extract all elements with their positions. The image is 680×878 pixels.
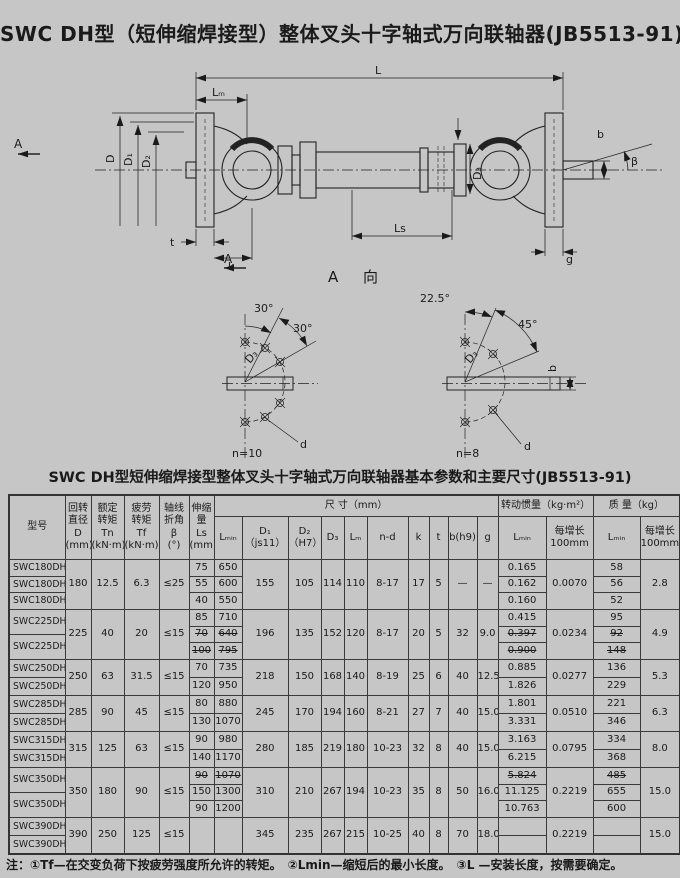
cell-value: 550 bbox=[215, 593, 242, 609]
model-cell: SWC350DH1SWC350DH2 bbox=[9, 768, 65, 818]
inertia-lmin-cell: 5.82411.12510.763 bbox=[498, 768, 546, 818]
right-b-label: b bbox=[546, 365, 559, 372]
ls-cell bbox=[189, 818, 214, 855]
mass-per100-cell: 15.0 bbox=[640, 818, 680, 855]
b-cell: 40 bbox=[448, 696, 477, 732]
cell-value: 55 bbox=[190, 577, 214, 594]
model-cell: SWC390DH1SWC390DH2 bbox=[9, 818, 65, 855]
b-cell: 70 bbox=[448, 818, 477, 855]
tn-cell: 63 bbox=[91, 660, 124, 696]
table-row: SWC250DH1SWC250DH22506331.5≤157012073595… bbox=[9, 660, 680, 696]
t-cell: 7 bbox=[429, 696, 448, 732]
header-nd: n-d bbox=[367, 517, 408, 560]
cell-value: 0.415 bbox=[499, 610, 546, 627]
d-cell: 250 bbox=[65, 660, 91, 696]
cell-value: 75 bbox=[190, 560, 214, 577]
main-view-labels: L Lₘ Ls D D₁ D₂ D₃ t k g b β A A bbox=[14, 64, 638, 273]
lm-cell: 120 bbox=[344, 610, 367, 660]
cell-value: 1300 bbox=[215, 785, 242, 802]
header-lmin: Lₘᵢₙ bbox=[214, 517, 242, 560]
d3-cell: 114 bbox=[321, 560, 344, 610]
ls-cell: 9015090 bbox=[189, 768, 214, 818]
section-A-label-bottom: A bbox=[224, 252, 233, 266]
tn-cell: 180 bbox=[91, 768, 124, 818]
inertia-per100-cell: 0.2219 bbox=[546, 818, 593, 855]
cell-value: 90 bbox=[190, 732, 214, 750]
t-cell: 5 bbox=[429, 610, 448, 660]
mass-per100-cell: 2.8 bbox=[640, 560, 680, 610]
d1-cell: 155 bbox=[242, 560, 288, 610]
cell-value: 70 bbox=[190, 660, 214, 678]
d2-cell: 170 bbox=[288, 696, 321, 732]
beta-deflection-line bbox=[563, 144, 652, 170]
angle-225-label: 22.5° bbox=[420, 292, 450, 305]
mass-lmin-cell: 9592148 bbox=[593, 610, 640, 660]
cell-value: 640 bbox=[215, 627, 242, 644]
d2-cell: 105 bbox=[288, 560, 321, 610]
inertia-per100-cell: 0.0277 bbox=[546, 660, 593, 696]
ls-cell: 90140 bbox=[189, 732, 214, 768]
angle-30-label-2: 30° bbox=[293, 322, 313, 335]
coupling-drawing-svg: L Lₘ Ls D D₁ D₂ D₃ t k g b β A A A 向 30°… bbox=[0, 58, 680, 460]
d2-cell: 185 bbox=[288, 732, 321, 768]
mass-lmin-cell: 334368 bbox=[593, 732, 640, 768]
ls-cell: 8570100 bbox=[189, 610, 214, 660]
b-cell: — bbox=[448, 560, 477, 610]
d2-cell: 235 bbox=[288, 818, 321, 855]
mass-lmin-cell: 221346 bbox=[593, 696, 640, 732]
k-cell: 25 bbox=[408, 660, 429, 696]
nd-cell: 10-25 bbox=[367, 818, 408, 855]
cell-value: 1070 bbox=[215, 714, 242, 731]
inertia-lmin-cell: 3.1636.215 bbox=[498, 732, 546, 768]
cell-value: 5.824 bbox=[499, 768, 546, 785]
cell-value: 11.125 bbox=[499, 785, 546, 802]
model-name: SWC390DH2 bbox=[10, 836, 65, 853]
header-d1: D₁ （js11） bbox=[242, 517, 288, 560]
k-cell: 32 bbox=[408, 732, 429, 768]
tn-cell: 12.5 bbox=[91, 560, 124, 610]
d3-cell: 219 bbox=[321, 732, 344, 768]
header-inertia-per100: 每增长 100mm bbox=[546, 517, 593, 560]
k-cell: 27 bbox=[408, 696, 429, 732]
left-bearing-cap bbox=[232, 140, 272, 149]
dim-D2-label: D₂ bbox=[140, 155, 153, 168]
section-A-label-left: A bbox=[14, 137, 23, 151]
lmin-cell: 710640795 bbox=[214, 610, 242, 660]
header-extension: 伸缩 量 Ls (mm) bbox=[189, 495, 214, 560]
dim-b-label: b bbox=[597, 128, 604, 141]
left-D3-label: D₃ bbox=[242, 348, 260, 366]
tf-cell: 31.5 bbox=[124, 660, 159, 696]
model-name: SWC180DH1 bbox=[10, 560, 65, 577]
cell-value: 1.826 bbox=[499, 678, 546, 695]
dim-g-label: g bbox=[566, 253, 573, 266]
cell-value: 0.160 bbox=[499, 593, 546, 609]
g-cell: — bbox=[477, 560, 498, 610]
tf-cell: 63 bbox=[124, 732, 159, 768]
d3-cell: 168 bbox=[321, 660, 344, 696]
model-cell: SWC285DH1SWC285DH2 bbox=[9, 696, 65, 732]
nd-cell: 8-21 bbox=[367, 696, 408, 732]
inertia-lmin-cell: 0.1650.1620.160 bbox=[498, 560, 546, 610]
cell-value: 346 bbox=[594, 714, 640, 731]
dim-L-label: L bbox=[375, 64, 382, 77]
tn-cell: 40 bbox=[91, 610, 124, 660]
lm-cell: 194 bbox=[344, 768, 367, 818]
cell-value bbox=[499, 836, 546, 853]
right-bearing-cap bbox=[480, 140, 520, 149]
g-cell: 16.0 bbox=[477, 768, 498, 818]
right-detail-view bbox=[442, 308, 586, 458]
d-cell: 315 bbox=[65, 732, 91, 768]
cell-value: 150 bbox=[190, 785, 214, 802]
model-name: SWC350DH1 bbox=[10, 768, 65, 793]
model-name: SWC250DH2 bbox=[10, 678, 65, 695]
tn-cell: 125 bbox=[91, 732, 124, 768]
table-row: SWC285DH1SWC285DH22859045≤15801308801070… bbox=[9, 696, 680, 732]
header-rotation-diameter: 回转 直径 D (mm) bbox=[65, 495, 91, 560]
cell-value bbox=[594, 818, 640, 836]
inertia-lmin-cell: 0.4150.3970.900 bbox=[498, 610, 546, 660]
t-cell: 8 bbox=[429, 818, 448, 855]
footnote: 注：①Tf—在交变负荷下按疲劳强度所允许的转矩。 ②Lmin—缩短后的最小长度。… bbox=[6, 856, 678, 873]
g-cell: 15.0 bbox=[477, 732, 498, 768]
cell-value: 0.900 bbox=[499, 643, 546, 659]
d1-cell: 280 bbox=[242, 732, 288, 768]
d2-cell: 135 bbox=[288, 610, 321, 660]
k-cell: 35 bbox=[408, 768, 429, 818]
cell-value: 52 bbox=[594, 593, 640, 609]
cell-value: 40 bbox=[190, 593, 214, 609]
header-model: 型号 bbox=[9, 495, 65, 560]
header-t: t bbox=[429, 517, 448, 560]
header-k: k bbox=[408, 517, 429, 560]
tn-cell: 90 bbox=[91, 696, 124, 732]
tf-cell: 6.3 bbox=[124, 560, 159, 610]
model-cell: SWC180DH1SWC180DH2SWC180DH3 bbox=[9, 560, 65, 610]
beta-cell: ≤25 bbox=[159, 560, 189, 610]
lm-cell: 215 bbox=[344, 818, 367, 855]
d2-cell: 150 bbox=[288, 660, 321, 696]
model-name: SWC250DH1 bbox=[10, 660, 65, 678]
angle-45-label: 45° bbox=[518, 318, 538, 331]
left-n-label: n=10 bbox=[232, 447, 262, 460]
cell-value: 229 bbox=[594, 678, 640, 695]
cell-value: 90 bbox=[190, 801, 214, 817]
model-name: SWC225DH1 bbox=[10, 610, 65, 635]
left-detail-labels: 30° 30° D₃ d n=10 bbox=[232, 302, 313, 460]
right-detail-labels: 22.5° 45° D₃ d n=8 b bbox=[420, 292, 559, 460]
d3-cell: 194 bbox=[321, 696, 344, 732]
cell-value: 0.397 bbox=[499, 627, 546, 644]
mass-per100-cell: 4.9 bbox=[640, 610, 680, 660]
cell-value: 140 bbox=[190, 750, 214, 767]
right-d-label: d bbox=[524, 440, 531, 453]
d-cell: 390 bbox=[65, 818, 91, 855]
page-title: SWC DH型（短伸缩焊接型）整体叉头十字轴式万向联轴器(JB5513-91) bbox=[0, 18, 680, 47]
k-cell: 20 bbox=[408, 610, 429, 660]
cell-value bbox=[594, 836, 640, 853]
cell-value: 0.885 bbox=[499, 660, 546, 678]
header-g: g bbox=[477, 517, 498, 560]
inertia-per100-cell: 0.0234 bbox=[546, 610, 593, 660]
lm-cell: 140 bbox=[344, 660, 367, 696]
mass-per100-cell: 5.3 bbox=[640, 660, 680, 696]
cell-value: 710 bbox=[215, 610, 242, 627]
b-cell: 50 bbox=[448, 768, 477, 818]
table-row: SWC315DH1SWC315DH231512563≤1590140980117… bbox=[9, 732, 680, 768]
cell-value: 368 bbox=[594, 750, 640, 767]
model-name: SWC180DH2 bbox=[10, 577, 65, 594]
dim-Lm-label: Lₘ bbox=[212, 86, 225, 99]
beta-cell: ≤15 bbox=[159, 660, 189, 696]
lmin-cell: 8801070 bbox=[214, 696, 242, 732]
cell-value: 3.331 bbox=[499, 714, 546, 731]
cell-value: 120 bbox=[190, 678, 214, 695]
cell-value bbox=[215, 818, 242, 853]
cell-value: 600 bbox=[594, 801, 640, 817]
mass-per100-cell: 15.0 bbox=[640, 768, 680, 818]
dim-Ls-label: Ls bbox=[394, 222, 406, 235]
cell-value: 58 bbox=[594, 560, 640, 577]
model-name: SWC285DH2 bbox=[10, 714, 65, 731]
mass-per100-cell: 6.3 bbox=[640, 696, 680, 732]
table-row: SWC350DH1SWC350DH235018090≤1590150901070… bbox=[9, 768, 680, 818]
cell-value: 655 bbox=[594, 785, 640, 802]
cell-value: 950 bbox=[215, 678, 242, 695]
ls-cell: 80130 bbox=[189, 696, 214, 732]
dim-D1-label: D₁ bbox=[122, 153, 135, 166]
d-cell: 285 bbox=[65, 696, 91, 732]
g-cell: 9.0 bbox=[477, 610, 498, 660]
cell-value: 148 bbox=[594, 643, 640, 659]
mass-lmin-cell bbox=[593, 818, 640, 855]
nd-cell: 10-23 bbox=[367, 732, 408, 768]
tf-cell: 20 bbox=[124, 610, 159, 660]
d1-cell: 196 bbox=[242, 610, 288, 660]
inertia-per100-cell: 0.0070 bbox=[546, 560, 593, 610]
cell-value: 80 bbox=[190, 696, 214, 714]
header-size-band: 尺 寸（mm） bbox=[214, 495, 498, 517]
cell-value: 1.801 bbox=[499, 696, 546, 714]
cell-value: 136 bbox=[594, 660, 640, 678]
technical-drawing: L Lₘ Ls D D₁ D₂ D₃ t k g b β A A A 向 30°… bbox=[0, 58, 680, 460]
cell-value: 0.162 bbox=[499, 577, 546, 594]
t-cell: 6 bbox=[429, 660, 448, 696]
lm-cell: 180 bbox=[344, 732, 367, 768]
dim-beta-label: β bbox=[631, 155, 638, 168]
cell-value: 1200 bbox=[215, 801, 242, 817]
d1-cell: 245 bbox=[242, 696, 288, 732]
lmin-cell: 650600550 bbox=[214, 560, 242, 610]
table-row: SWC390DH1SWC390DH2390250125≤153452352672… bbox=[9, 818, 680, 855]
lm-cell: 160 bbox=[344, 696, 367, 732]
d3-cell: 267 bbox=[321, 818, 344, 855]
cell-value: 1170 bbox=[215, 750, 242, 767]
model-name: SWC180DH3 bbox=[10, 593, 65, 609]
t-cell: 5 bbox=[429, 560, 448, 610]
d-cell: 225 bbox=[65, 610, 91, 660]
header-inertia-lmin: Lₘᵢₙ bbox=[498, 517, 546, 560]
right-n-label: n=8 bbox=[456, 447, 479, 460]
cell-value: 90 bbox=[190, 768, 214, 785]
ls-cell: 755540 bbox=[189, 560, 214, 610]
header-mass-band: 质 量（kg） bbox=[593, 495, 680, 517]
tf-cell: 125 bbox=[124, 818, 159, 855]
cell-value: 980 bbox=[215, 732, 242, 750]
d1-cell: 345 bbox=[242, 818, 288, 855]
cell-value: 3.163 bbox=[499, 732, 546, 750]
mass-lmin-cell: 485655600 bbox=[593, 768, 640, 818]
cell-value: 1070 bbox=[215, 768, 242, 785]
d2-cell: 210 bbox=[288, 768, 321, 818]
cell-value: 130 bbox=[190, 714, 214, 731]
dim-D3-label: D₃ bbox=[471, 167, 484, 180]
nd-cell: 10-23 bbox=[367, 768, 408, 818]
spec-table: 型号 回转 直径 D (mm) 额定 转矩 Tn (kN·m) 疲劳 转矩 Tf… bbox=[8, 494, 680, 855]
nd-cell: 8-19 bbox=[367, 660, 408, 696]
t-cell: 8 bbox=[429, 768, 448, 818]
cell-value: 70 bbox=[190, 627, 214, 644]
mass-lmin-cell: 585652 bbox=[593, 560, 640, 610]
header-fatigue-torque: 疲劳 转矩 Tf (kN·m) bbox=[124, 495, 159, 560]
header-lm: Lₘ bbox=[344, 517, 367, 560]
cell-value: 650 bbox=[215, 560, 242, 577]
cell-value: 6.215 bbox=[499, 750, 546, 767]
cell-value: 600 bbox=[215, 577, 242, 594]
d-cell: 350 bbox=[65, 768, 91, 818]
lmin-cell: 107013001200 bbox=[214, 768, 242, 818]
header-d3: D₃ bbox=[321, 517, 344, 560]
mass-per100-cell: 8.0 bbox=[640, 732, 680, 768]
lm-cell: 110 bbox=[344, 560, 367, 610]
inertia-lmin-cell: 1.8013.331 bbox=[498, 696, 546, 732]
tf-cell: 45 bbox=[124, 696, 159, 732]
angle-30-label-1: 30° bbox=[254, 302, 274, 315]
cell-value: 221 bbox=[594, 696, 640, 714]
nd-cell: 8-17 bbox=[367, 610, 408, 660]
d-cell: 180 bbox=[65, 560, 91, 610]
beta-cell: ≤15 bbox=[159, 732, 189, 768]
b-cell: 40 bbox=[448, 732, 477, 768]
cell-value: 85 bbox=[190, 610, 214, 627]
dim-D-label: D bbox=[104, 155, 117, 163]
cell-value: 795 bbox=[215, 643, 242, 659]
tf-cell: 90 bbox=[124, 768, 159, 818]
g-cell: 12.5 bbox=[477, 660, 498, 696]
bolt-holes bbox=[240, 337, 498, 427]
model-cell: SWC315DH1SWC315DH2 bbox=[9, 732, 65, 768]
g-cell: 15.0 bbox=[477, 696, 498, 732]
cell-value bbox=[190, 818, 214, 853]
b-cell: 40 bbox=[448, 660, 477, 696]
inertia-per100-cell: 0.0510 bbox=[546, 696, 593, 732]
cell-value: 10.763 bbox=[499, 801, 546, 817]
g-cell: 18.0 bbox=[477, 818, 498, 855]
cell-value: 0.165 bbox=[499, 560, 546, 577]
cell-value: 100 bbox=[190, 643, 214, 659]
ls-cell: 70120 bbox=[189, 660, 214, 696]
tn-cell: 250 bbox=[91, 818, 124, 855]
model-name: SWC390DH1 bbox=[10, 818, 65, 836]
model-cell: SWC225DH1SWC225DH2 bbox=[9, 610, 65, 660]
header-mass-per100: 每增长 100mm bbox=[640, 517, 680, 560]
model-name: SWC315DH2 bbox=[10, 750, 65, 767]
header-mass-lmin: Lₘᵢₙ bbox=[593, 517, 640, 560]
main-assembly-view bbox=[95, 113, 662, 227]
d3-cell: 152 bbox=[321, 610, 344, 660]
header-rated-torque: 额定 转矩 Tn (kN·m) bbox=[91, 495, 124, 560]
model-cell: SWC250DH1SWC250DH2 bbox=[9, 660, 65, 696]
d3-cell: 267 bbox=[321, 768, 344, 818]
dim-t-label: t bbox=[170, 236, 175, 249]
inertia-lmin-cell bbox=[498, 818, 546, 855]
beta-cell: ≤15 bbox=[159, 818, 189, 855]
cell-value: 485 bbox=[594, 768, 640, 785]
lmin-cell: 735950 bbox=[214, 660, 242, 696]
t-cell: 8 bbox=[429, 732, 448, 768]
inertia-lmin-cell: 0.8851.826 bbox=[498, 660, 546, 696]
cell-value: 735 bbox=[215, 660, 242, 678]
model-name: SWC350DH2 bbox=[10, 793, 65, 817]
header-d2: D₂ （H7） bbox=[288, 517, 321, 560]
inertia-per100-cell: 0.2219 bbox=[546, 768, 593, 818]
header-b: b(h9) bbox=[448, 517, 477, 560]
left-d-label: d bbox=[300, 438, 307, 451]
model-name: SWC315DH1 bbox=[10, 732, 65, 750]
inertia-per100-cell: 0.0795 bbox=[546, 732, 593, 768]
header-inertia-band: 转动惯量（kg·m²） bbox=[498, 495, 593, 517]
model-name: SWC285DH1 bbox=[10, 696, 65, 714]
d1-cell: 310 bbox=[242, 768, 288, 818]
cell-value: 92 bbox=[594, 627, 640, 644]
beta-cell: ≤15 bbox=[159, 610, 189, 660]
lmin-cell bbox=[214, 818, 242, 855]
lmin-cell: 9801170 bbox=[214, 732, 242, 768]
mass-lmin-cell: 136229 bbox=[593, 660, 640, 696]
beta-cell: ≤15 bbox=[159, 768, 189, 818]
d1-cell: 218 bbox=[242, 660, 288, 696]
cell-value: 880 bbox=[215, 696, 242, 714]
cell-value: 56 bbox=[594, 577, 640, 594]
table-row: SWC180DH1SWC180DH2SWC180DH318012.56.3≤25… bbox=[9, 560, 680, 610]
nd-cell: 8-17 bbox=[367, 560, 408, 610]
k-cell: 17 bbox=[408, 560, 429, 610]
table-row: SWC225DH1SWC225DH22254020≤15857010071064… bbox=[9, 610, 680, 660]
header-axis-angle: 轴线 折角 β (°) bbox=[159, 495, 189, 560]
b-cell: 32 bbox=[448, 610, 477, 660]
cell-value: 334 bbox=[594, 732, 640, 750]
view-A-heading: A 向 bbox=[328, 268, 388, 286]
cell-value: 95 bbox=[594, 610, 640, 627]
table-caption: SWC DH型短伸缩焊接型整体叉头十字轴式万向联轴器基本参数和主要尺寸(JB55… bbox=[0, 466, 680, 487]
k-cell: 40 bbox=[408, 818, 429, 855]
model-name: SWC225DH2 bbox=[10, 635, 65, 659]
beta-cell: ≤15 bbox=[159, 696, 189, 732]
spec-table-body: SWC180DH1SWC180DH2SWC180DH318012.56.3≤25… bbox=[9, 560, 680, 855]
cell-value bbox=[499, 818, 546, 836]
